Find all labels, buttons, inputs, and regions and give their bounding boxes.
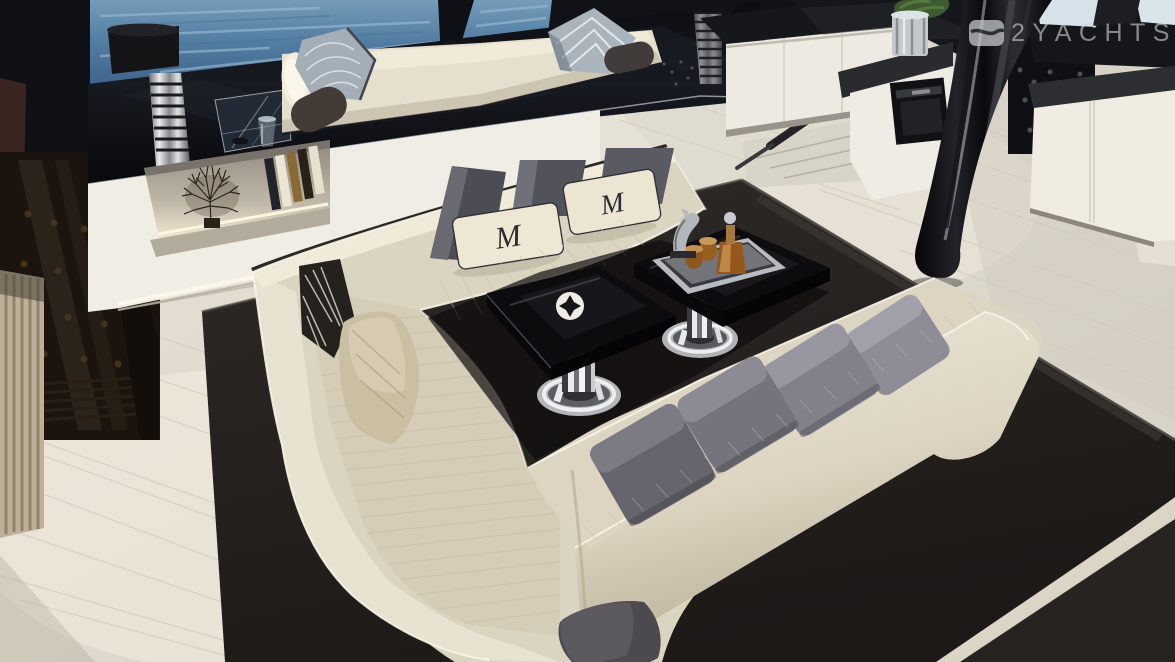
svg-text:2YACHTS: 2YACHTS <box>1011 19 1175 47</box>
